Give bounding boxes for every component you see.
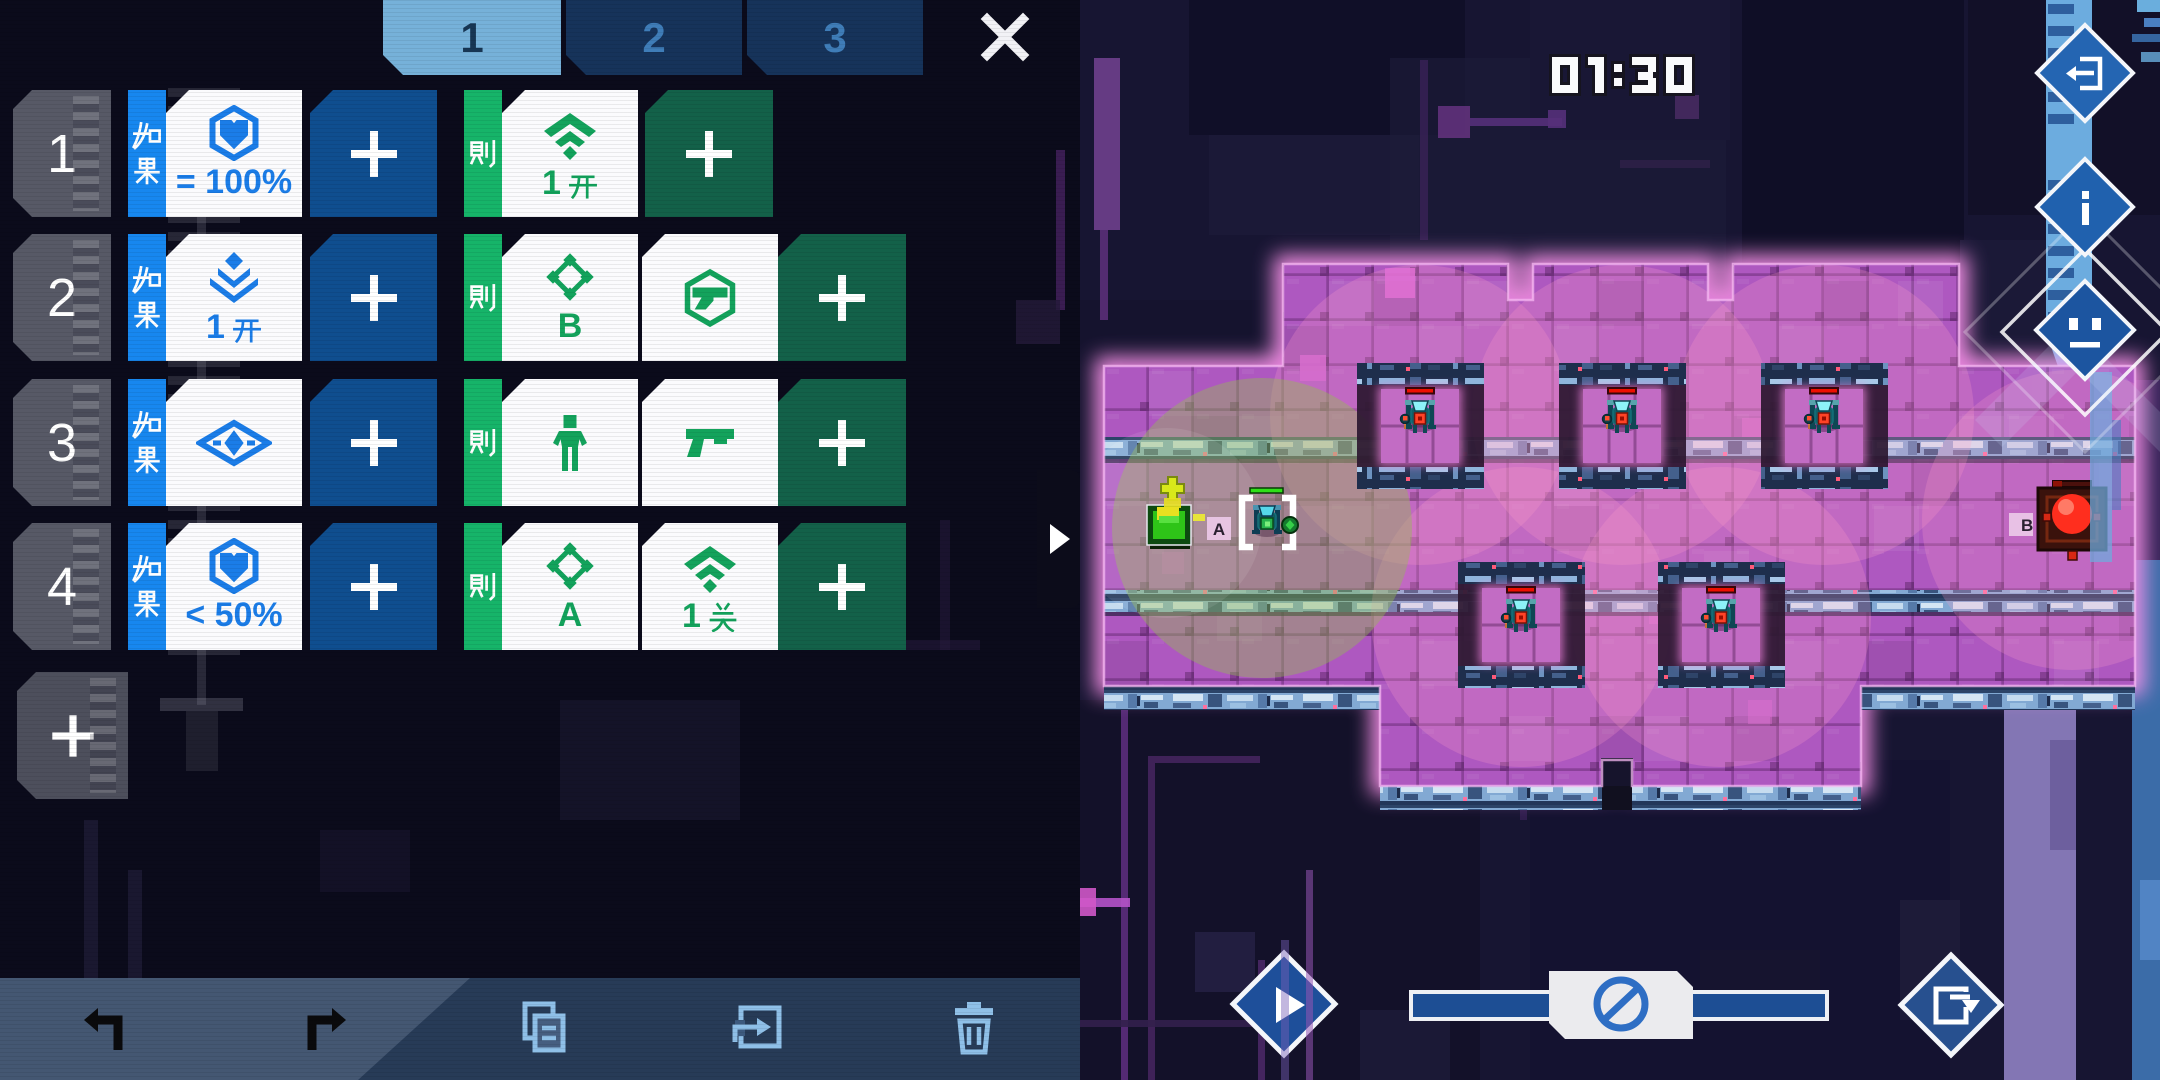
svg-text:A: A — [1213, 520, 1225, 539]
svg-text:B: B — [2021, 516, 2033, 535]
